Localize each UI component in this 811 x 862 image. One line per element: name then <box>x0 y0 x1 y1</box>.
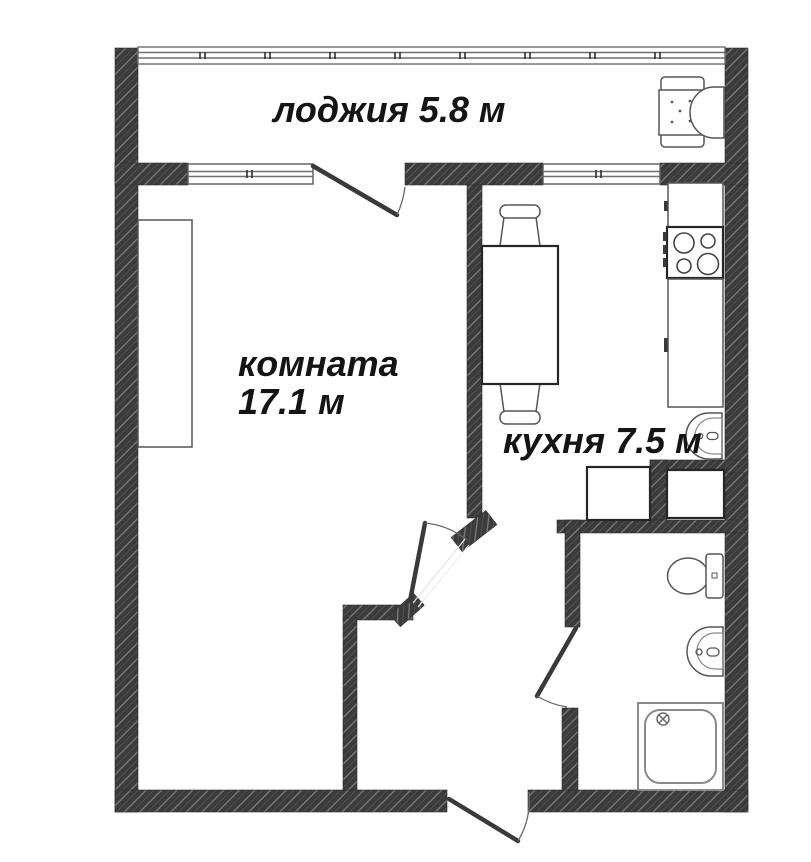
kitchen-window <box>543 164 660 184</box>
wall-left <box>115 48 138 812</box>
wall-bath-left-lower <box>562 708 578 790</box>
washbasin <box>687 627 723 676</box>
shower-tray <box>638 703 723 790</box>
wall-bottom-right <box>528 790 748 812</box>
armchair <box>659 77 724 147</box>
balcony-door <box>313 166 405 215</box>
wall-hall-left <box>343 618 357 790</box>
kitchen-counter-lower <box>664 279 723 407</box>
storage-cabinet-left <box>587 467 650 520</box>
door-stop-b <box>390 593 424 626</box>
floor-plan: лоджия 5.8 м комната 17.1 м кухня 7.5 м <box>0 0 811 862</box>
floor-plan-canvas: лоджия 5.8 м комната 17.1 м кухня 7.5 м <box>0 0 811 862</box>
chair-top <box>500 205 540 246</box>
wall-loggia-c <box>660 163 748 185</box>
toilet <box>668 554 724 598</box>
room-name-label: комната <box>238 343 399 384</box>
room-door <box>410 523 469 607</box>
bathroom-door <box>537 628 576 707</box>
room-window <box>188 164 313 184</box>
wall-loggia-b <box>405 163 543 185</box>
wardrobe <box>138 220 192 447</box>
entrance-door <box>449 792 529 841</box>
wall-bath-left-upper <box>565 520 580 627</box>
wall-loggia-a <box>115 163 188 185</box>
loggia-glazing <box>138 47 725 64</box>
wall-right <box>725 48 748 812</box>
wall-bath-top <box>557 520 748 533</box>
wall-bottom-left <box>115 790 447 812</box>
loggia-label: лоджия 5.8 м <box>271 89 506 130</box>
kitchen-label: кухня 7.5 м <box>503 420 702 461</box>
chair-bottom <box>500 383 540 424</box>
dining-table <box>482 246 558 384</box>
room-area-label: 17.1 м <box>238 381 345 422</box>
stove <box>663 227 723 278</box>
storage-cabinet-right <box>667 470 724 518</box>
wall-divider <box>467 185 482 518</box>
kitchen-counter-upper <box>664 183 723 227</box>
wall-niche-mid <box>650 460 667 520</box>
